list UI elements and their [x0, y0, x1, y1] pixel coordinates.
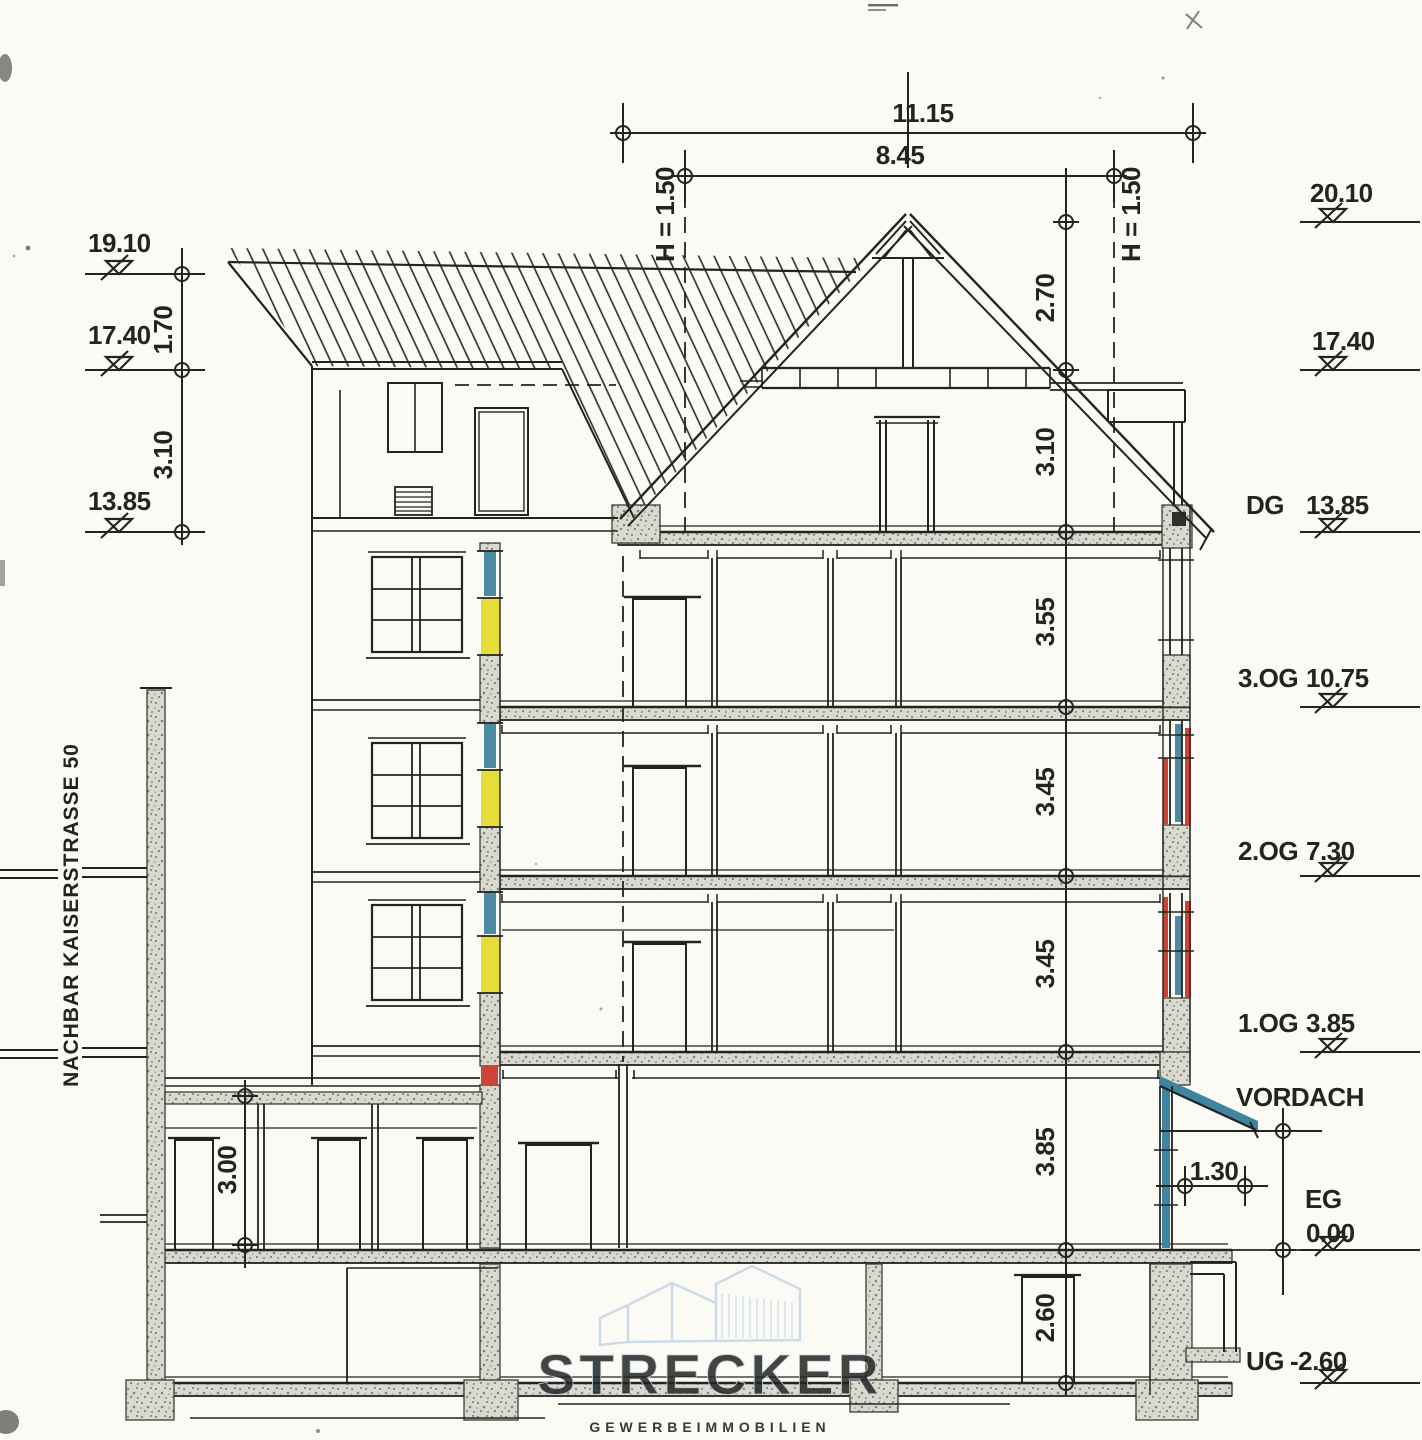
floor-label-3og: 3.OG — [1238, 663, 1298, 693]
red-accent — [1163, 758, 1168, 824]
level-right-ridge: 20.10 — [1310, 178, 1373, 208]
dim-eg: 3.85 — [1030, 1128, 1060, 1177]
dim-roof-upper: 2.70 — [1030, 274, 1060, 323]
dim-2og: 3.45 — [1030, 768, 1060, 817]
dim-annex: 3.00 — [212, 1146, 242, 1195]
wall-masonry — [480, 993, 500, 1066]
glass-strip — [484, 551, 496, 596]
dim-ug: 2.60 — [1030, 1294, 1060, 1343]
wall-masonry — [1163, 998, 1190, 1052]
wall-masonry — [480, 827, 500, 892]
glass-strip — [1175, 724, 1182, 822]
wall-masonry — [480, 655, 500, 723]
watermark-brand: STRECKER — [537, 1343, 883, 1407]
floor-label-eg: EG — [1305, 1184, 1342, 1214]
spandrel-strip — [481, 770, 500, 827]
dim-headroom-left: H = 1.50 — [650, 167, 680, 262]
canopy-label: VORDACH — [1236, 1082, 1364, 1112]
dim-left-lower: 3.10 — [148, 431, 178, 480]
dim-roof-lower: 3.10 — [1030, 428, 1060, 477]
wall-masonry — [1163, 655, 1190, 707]
wall-masonry — [480, 543, 500, 551]
floor-label-ug: UG — [1246, 1346, 1284, 1376]
floor-label-1og: 1.OG — [1238, 1008, 1298, 1038]
storefront-glass — [1162, 1088, 1170, 1248]
neighbor-building-label: NACHBAR KAISERSTRASSE 50 — [60, 743, 83, 1087]
spandrel-strip — [481, 598, 500, 655]
floor-slab — [618, 532, 1190, 545]
dim-3og: 3.55 — [1030, 598, 1060, 647]
wall-masonry — [1186, 1348, 1240, 1362]
glass-strip — [484, 892, 496, 934]
glass-strip — [1175, 916, 1182, 995]
level-right-1og: 3.85 — [1306, 1008, 1355, 1038]
wall-masonry — [480, 1085, 500, 1248]
glass-strip — [484, 723, 496, 768]
level-right-dg: 13.85 — [1306, 490, 1369, 520]
section-canvas: 11.15 8.45 H = 1.50 H = 1.50 19.10 17.40… — [0, 0, 1422, 1440]
dim-left-upper: 1.70 — [148, 306, 178, 355]
level-left-upper: 17.40 — [88, 320, 151, 350]
wall-masonry — [464, 1380, 518, 1420]
wall-masonry — [1163, 825, 1190, 876]
wall-masonry — [1136, 1380, 1198, 1420]
level-right-3og: 10.75 — [1306, 663, 1369, 693]
dim-headroom-right: H = 1.50 — [1116, 167, 1146, 262]
dim-overall-width: 11.15 — [892, 98, 953, 128]
wall-masonry — [165, 1092, 482, 1104]
level-left-parapet: 19.10 — [88, 228, 151, 258]
wall-masonry — [126, 1380, 174, 1420]
wall-masonry — [480, 1264, 500, 1383]
level-right-eg: 0.00 — [1306, 1218, 1355, 1248]
watermark-tagline: GEWERBEIMMOBILIEN — [589, 1419, 830, 1435]
level-left-attic: 13.85 — [88, 486, 151, 516]
floor-label-2og: 2.OG — [1238, 836, 1298, 866]
red-accent — [481, 1066, 498, 1086]
building-section-drawing: 11.15 8.45 H = 1.50 H = 1.50 19.10 17.40… — [0, 0, 1422, 1440]
floor-slab — [482, 1052, 1190, 1065]
dim-1og: 3.45 — [1030, 940, 1060, 989]
level-right-ug: -2.60 — [1290, 1346, 1347, 1376]
level-right-collar: 17.40 — [1312, 326, 1375, 356]
wall-masonry — [612, 505, 660, 543]
wall-masonry — [1150, 1264, 1192, 1395]
dim-canopy-offset: 1.30 — [1190, 1156, 1239, 1186]
floor-slab — [482, 707, 1190, 720]
floor-slab — [482, 876, 1190, 889]
dim-ridge-width: 8.45 — [876, 140, 925, 170]
wall-masonry — [1162, 505, 1192, 548]
level-right-2og: 7.30 — [1306, 836, 1355, 866]
floor-label-dg: DG — [1246, 490, 1284, 520]
wall-masonry — [147, 690, 165, 1383]
spandrel-strip — [481, 936, 500, 993]
